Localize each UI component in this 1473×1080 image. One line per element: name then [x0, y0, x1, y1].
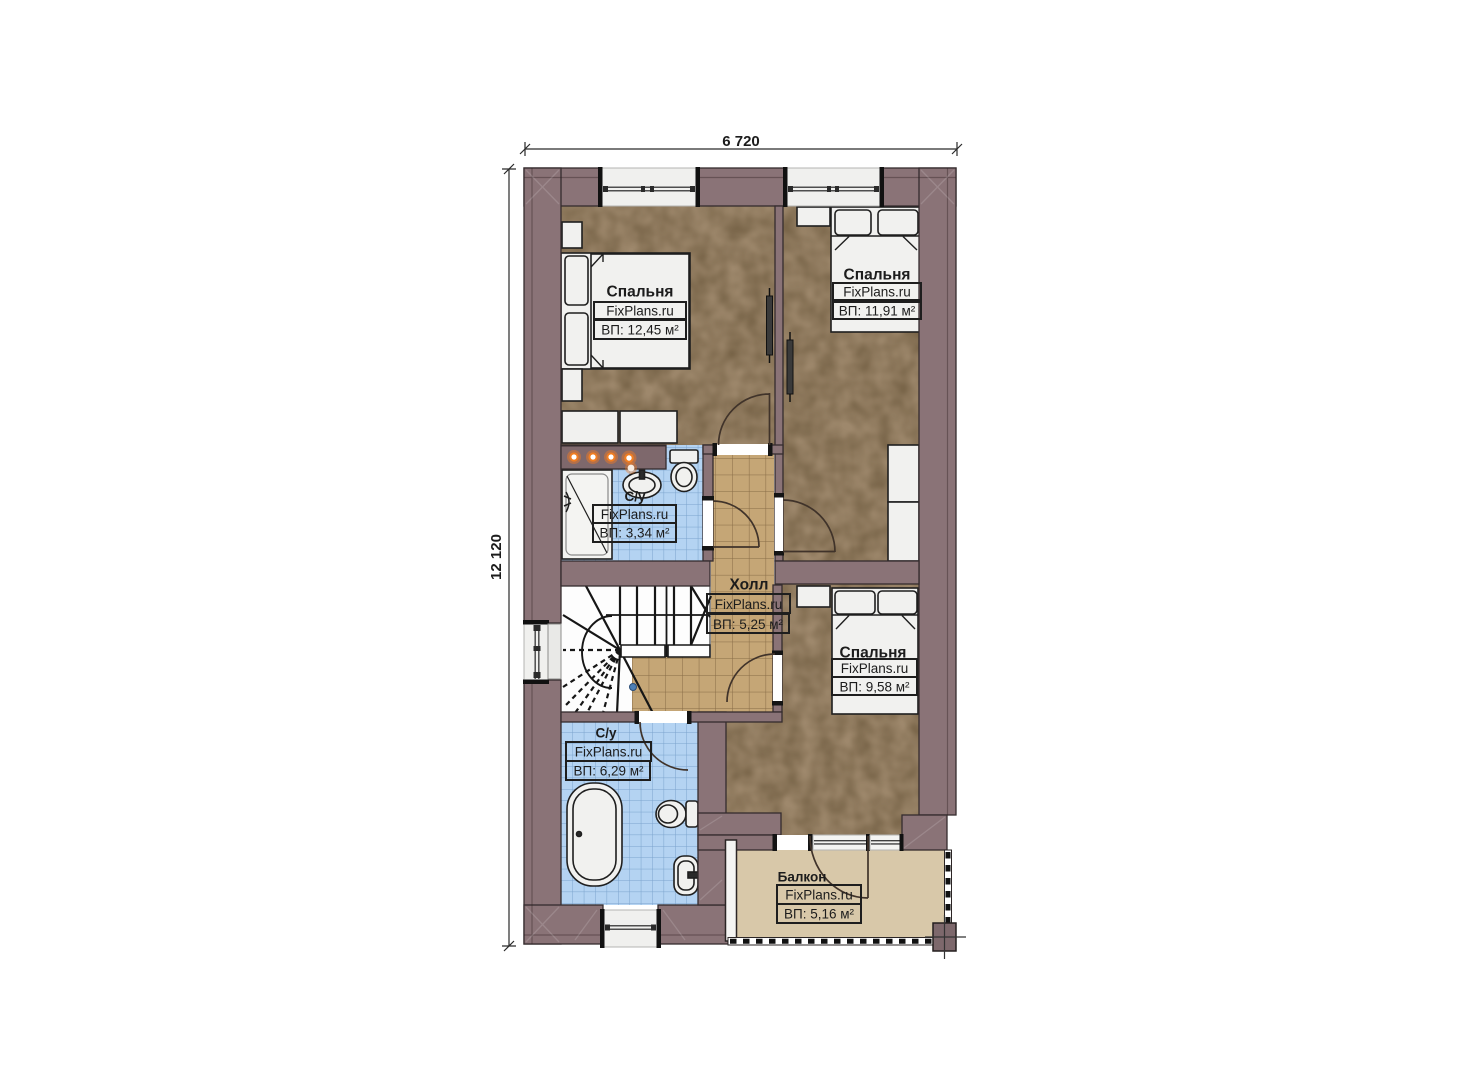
svg-text:FixPlans.ru: FixPlans.ru — [606, 303, 674, 318]
svg-text:Холл: Холл — [730, 577, 769, 594]
svg-text:ВП: 12,45 м²: ВП: 12,45 м² — [601, 322, 679, 337]
svg-text:ВП: 9,58 м²: ВП: 9,58 м² — [839, 679, 910, 694]
svg-text:ВП: 6,29 м²: ВП: 6,29 м² — [573, 763, 644, 778]
svg-text:С/у: С/у — [624, 489, 646, 504]
svg-text:FixPlans.ru: FixPlans.ru — [841, 661, 909, 676]
svg-text:Спальня: Спальня — [844, 267, 911, 284]
svg-text:ВП: 5,16 м²: ВП: 5,16 м² — [784, 906, 855, 921]
svg-text:12 120: 12 120 — [488, 534, 505, 580]
svg-text:ВП: 3,34 м²: ВП: 3,34 м² — [599, 525, 670, 540]
svg-text:6 720: 6 720 — [722, 133, 760, 150]
svg-text:FixPlans.ru: FixPlans.ru — [785, 887, 853, 902]
svg-text:ВП: 5,25 м²: ВП: 5,25 м² — [713, 617, 784, 632]
svg-text:FixPlans.ru: FixPlans.ru — [575, 745, 643, 760]
svg-text:Спальня: Спальня — [607, 284, 674, 301]
svg-text:Балкон: Балкон — [778, 870, 827, 885]
svg-text:FixPlans.ru: FixPlans.ru — [715, 597, 783, 612]
svg-text:FixPlans.ru: FixPlans.ru — [601, 507, 669, 522]
svg-text:ВП: 11,91 м²: ВП: 11,91 м² — [839, 303, 916, 318]
svg-text:FixPlans.ru: FixPlans.ru — [843, 284, 911, 299]
svg-text:С/у: С/у — [595, 726, 617, 741]
